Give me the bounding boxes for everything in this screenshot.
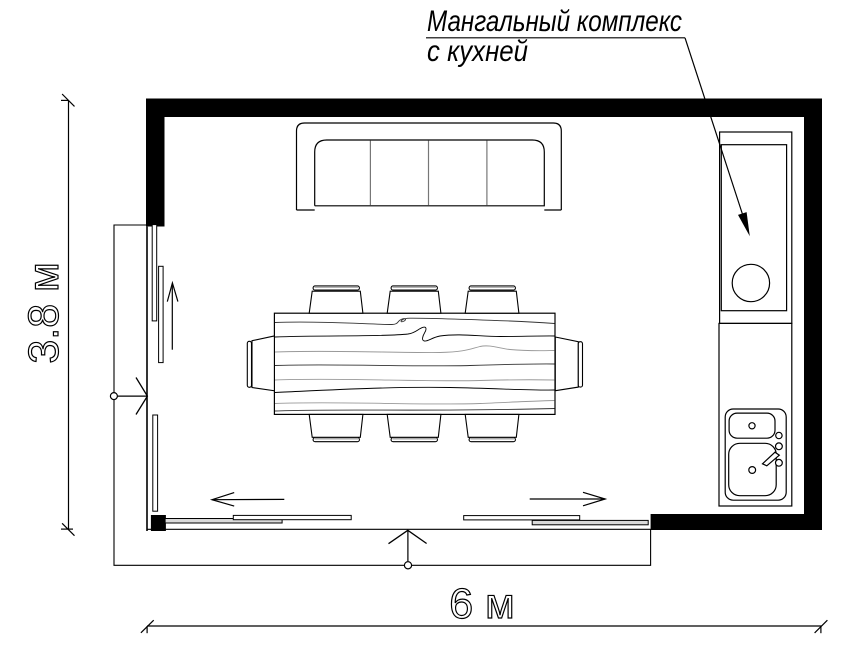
svg-text:3.8 м: 3.8 м [20, 262, 68, 363]
svg-text:с кухней: с кухней [427, 35, 528, 68]
svg-text:Мангальный комплекс: Мангальный комплекс [427, 5, 682, 38]
svg-text:6 м: 6 м [449, 580, 514, 628]
